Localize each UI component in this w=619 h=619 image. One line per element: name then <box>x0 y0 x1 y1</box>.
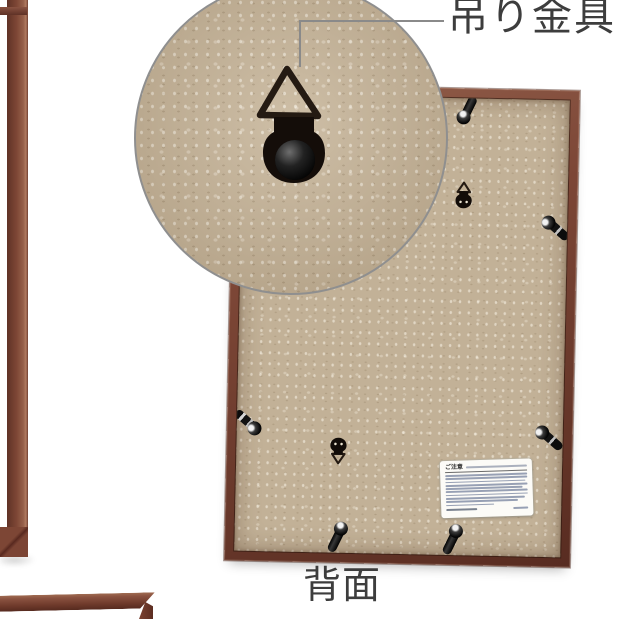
flex-clip-icon <box>532 423 567 456</box>
flex-clip-icon <box>438 522 466 558</box>
annotation-label: 吊り金具 <box>448 0 616 38</box>
left-frame-miter-corner <box>0 527 28 557</box>
caution-sticker: ご注意 <box>440 458 534 518</box>
d-ring-hanger-closeup-icon <box>252 50 332 186</box>
flex-clip-icon <box>323 519 351 556</box>
callout-line-vertical <box>299 21 301 67</box>
flex-clip-icon <box>234 405 264 438</box>
callout-line-horizontal <box>299 20 444 22</box>
sticker-title: ご注意 <box>445 465 463 472</box>
product-photo: ご注意 <box>0 0 619 619</box>
back-view-caption: 背面 <box>296 566 388 608</box>
d-ring-hanger-icon <box>454 179 473 210</box>
sticker-text-lines <box>445 473 528 507</box>
d-ring-hanger-icon <box>329 436 348 467</box>
bottomleft-frame-top-bar <box>0 592 155 612</box>
flex-clip-icon <box>454 94 481 127</box>
sticker-footer <box>446 507 528 511</box>
flex-clip-icon <box>539 213 570 246</box>
sticker-header-smalltext <box>466 465 527 469</box>
sticker-header: ご注意 <box>445 463 527 474</box>
left-frame-top-lip <box>0 7 27 15</box>
left-frame-vertical-bar <box>7 0 28 532</box>
